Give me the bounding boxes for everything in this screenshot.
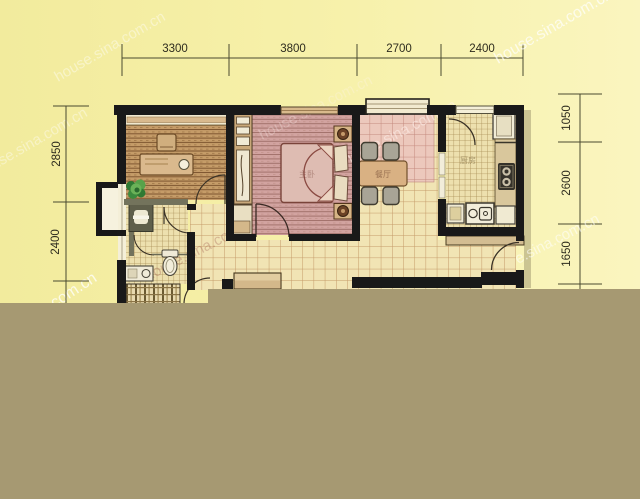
svg-text:3300: 3300 xyxy=(162,43,188,55)
svg-text:2600: 2600 xyxy=(561,170,573,196)
svg-text:餐厅: 餐厅 xyxy=(375,170,391,179)
svg-text:3800: 3800 xyxy=(280,43,306,55)
svg-text:1050: 1050 xyxy=(561,105,573,131)
svg-text:2850: 2850 xyxy=(51,141,63,167)
svg-text:主卧: 主卧 xyxy=(299,169,315,179)
svg-text:2700: 2700 xyxy=(386,43,412,55)
svg-text:厨房: 厨房 xyxy=(460,155,476,165)
svg-text:2400: 2400 xyxy=(50,229,62,255)
